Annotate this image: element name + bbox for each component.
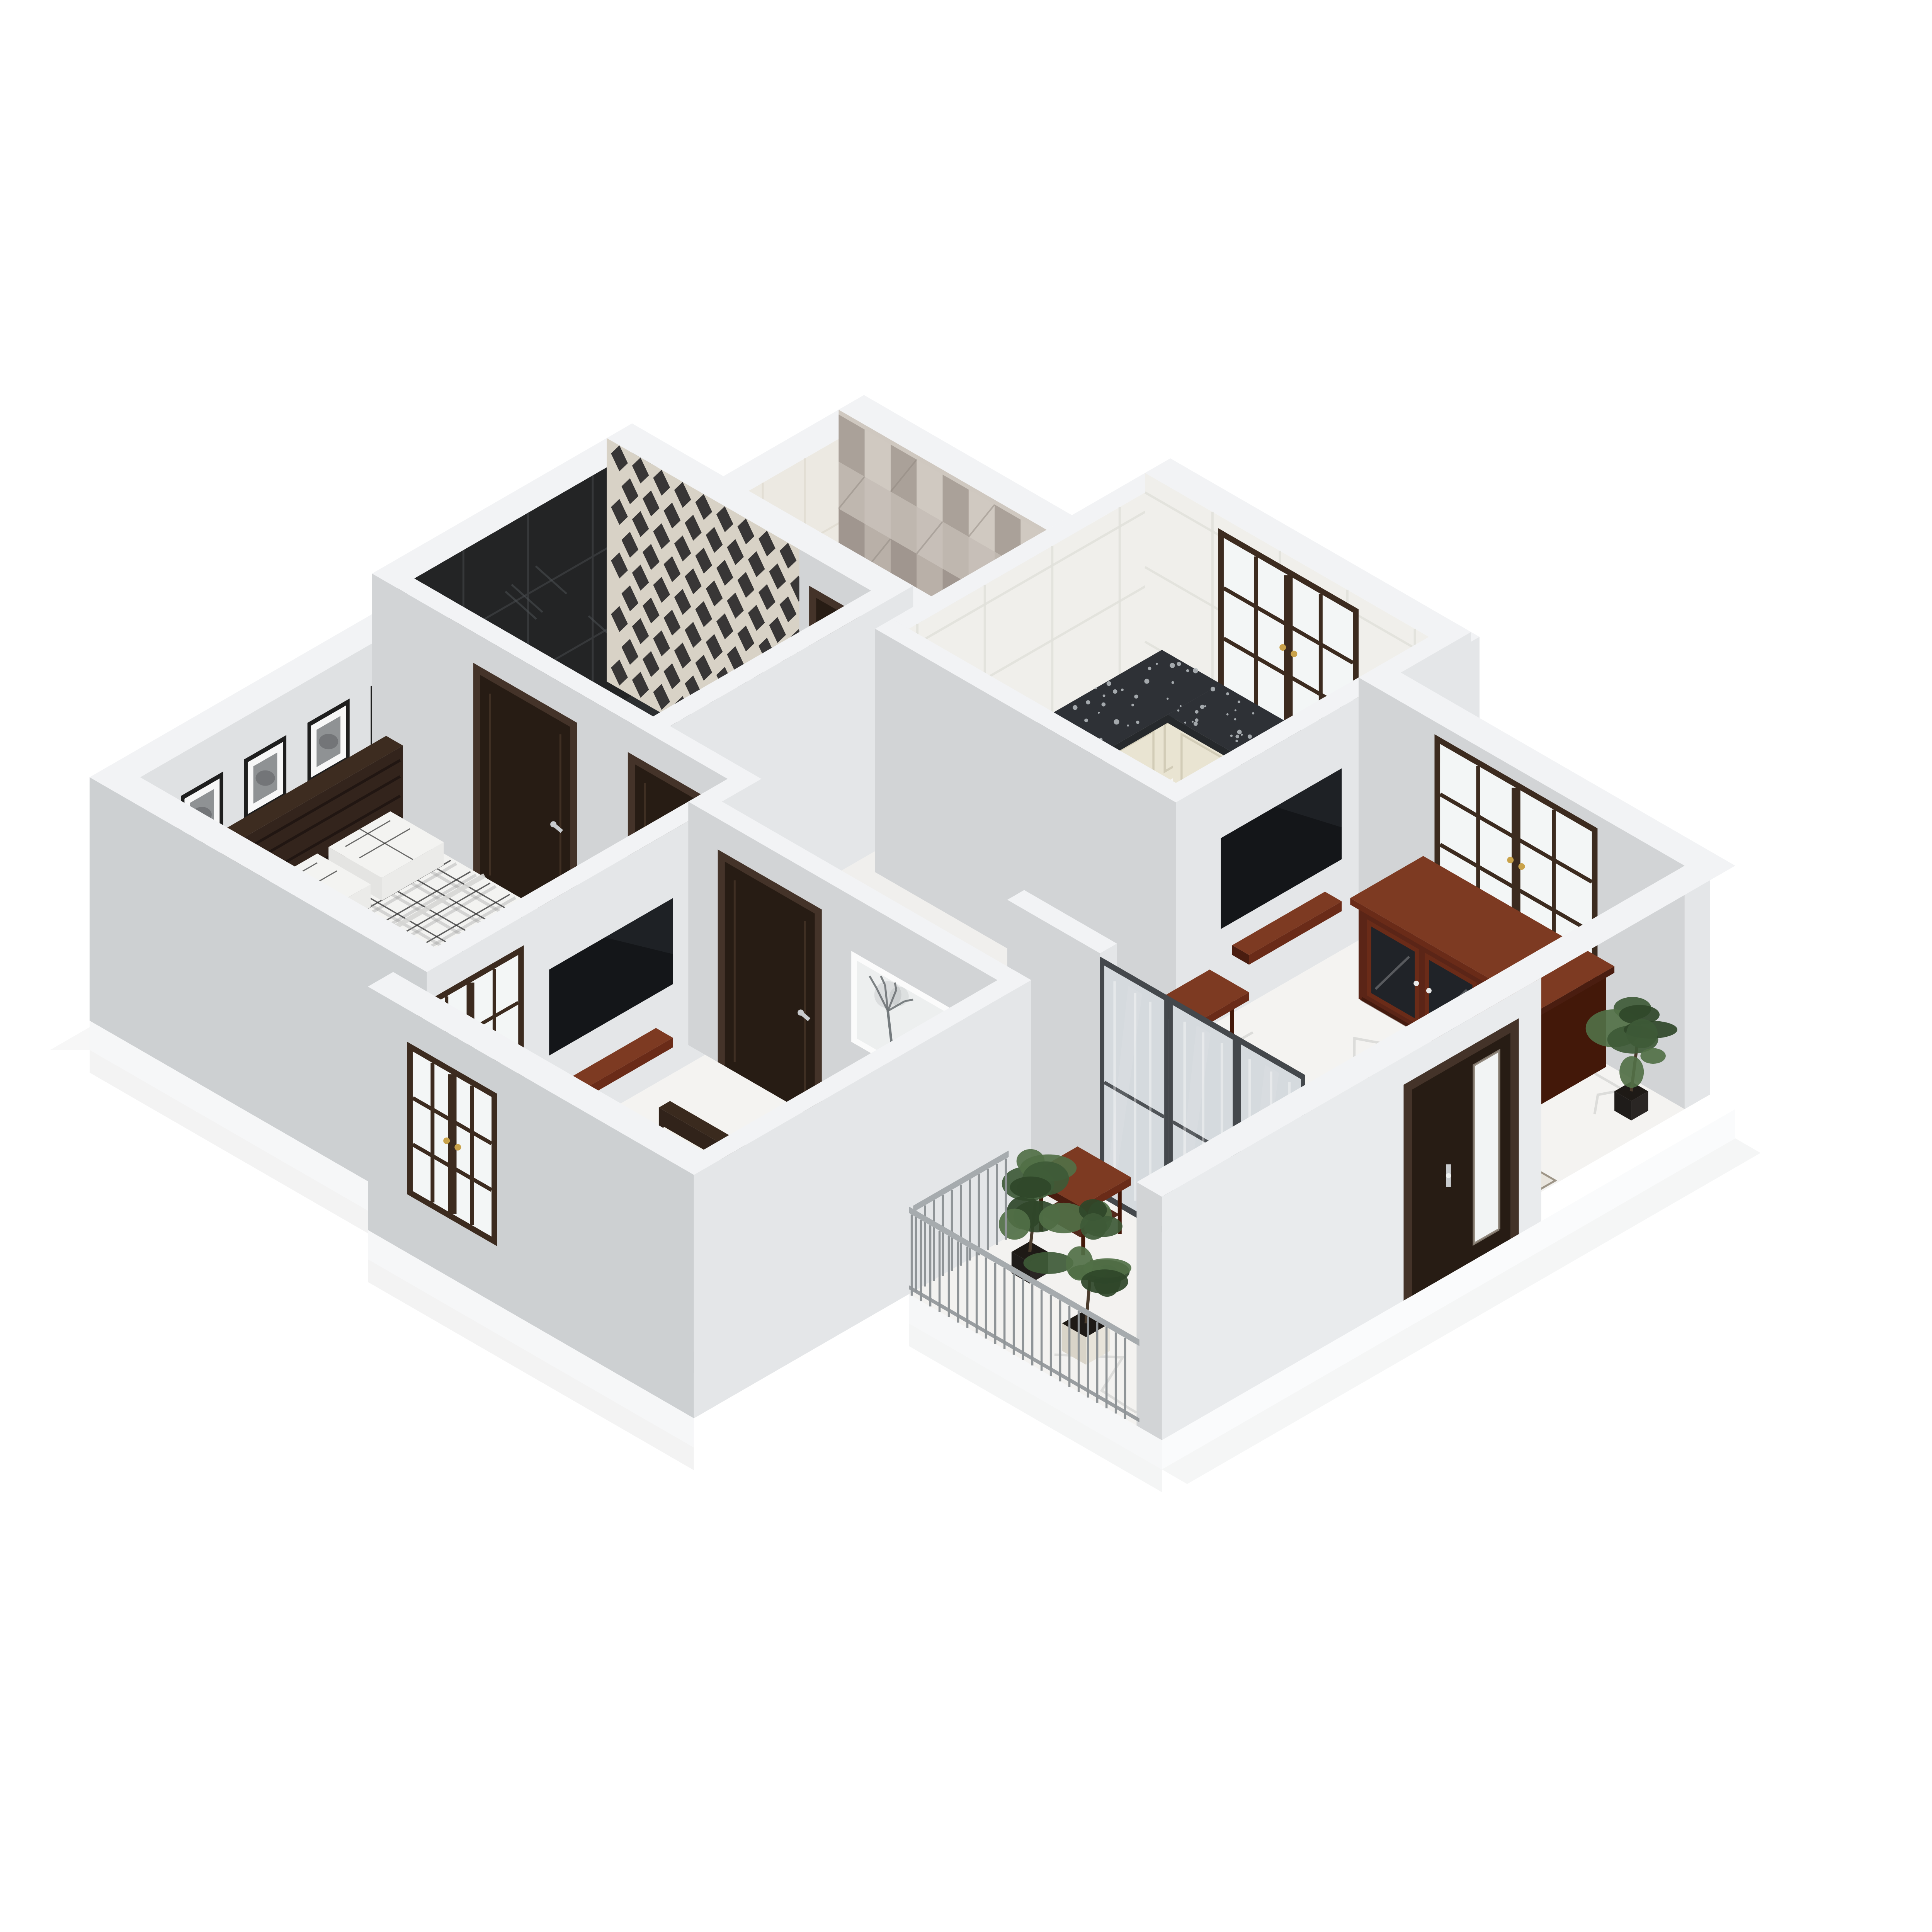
floorplan-3d-render: 3D isometric cutaway floor plan render o…: [0, 0, 1932, 1932]
apartment: [50, 395, 1760, 1492]
render-canvas: 3D isometric cutaway floor plan render o…: [0, 0, 1932, 1932]
